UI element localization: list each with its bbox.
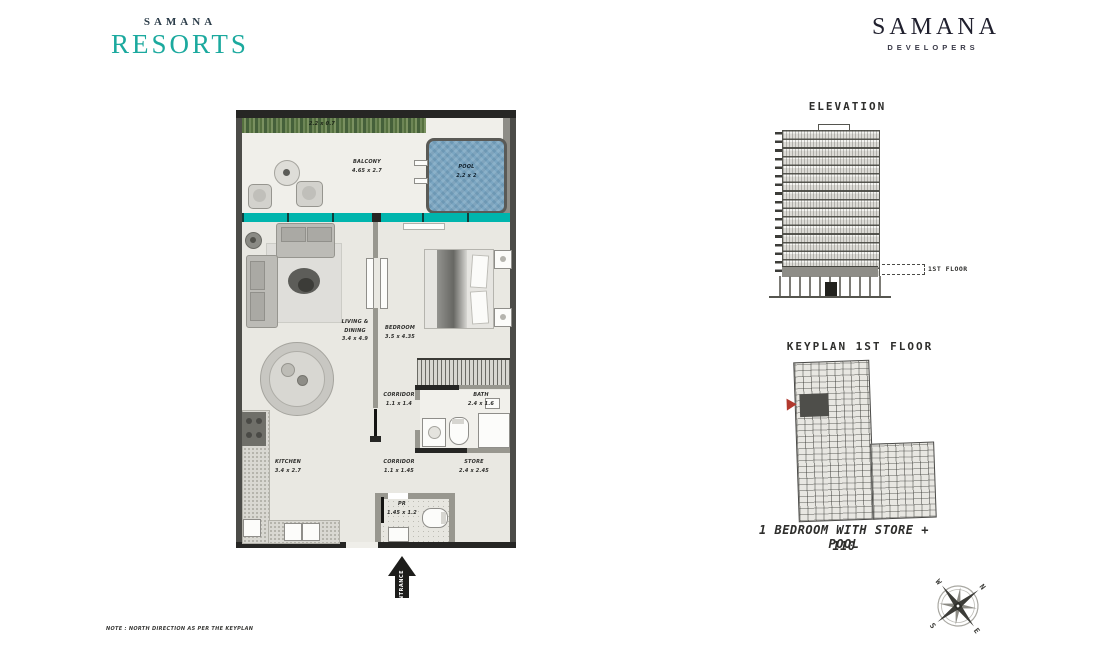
kitchen-appliance [243, 519, 261, 537]
bath-name: BATH [458, 391, 504, 400]
plant [250, 237, 256, 243]
dining-plate [281, 363, 295, 377]
keyplan-highlighted-unit [799, 393, 829, 417]
developers-logo-subtitle: DEVELOPERS [872, 43, 994, 52]
nightstand-lamp [500, 314, 506, 320]
shower-tub [478, 413, 510, 448]
bath-wall-top-2 [459, 385, 510, 389]
pool-ladder-rung [414, 160, 428, 166]
resorts-logo-wordmark-top: SAMANA [110, 16, 250, 28]
balcony-planter: 2.2 x 0.7 [242, 118, 426, 133]
sofa-chaise [246, 255, 278, 328]
sofa-cushion [281, 227, 306, 242]
bedroom-dims: 3.5 x 4.35 [379, 333, 421, 342]
store-name: STORE [450, 458, 498, 467]
corridor1-name: CORRIDOR [380, 391, 418, 400]
bed-pillow [470, 254, 489, 288]
bath-label: BATH 2.4 x 1.6 [458, 391, 504, 408]
store-dims: 2.4 x 2.45 [450, 467, 498, 476]
bedroom-label: BEDROOM 3.5 x 4.35 [379, 324, 421, 341]
bed-pillow [470, 290, 489, 324]
bath-wall-bottom [415, 448, 467, 453]
balcony-chair [296, 181, 323, 207]
keyplan-wing-horizontal [870, 442, 937, 520]
wall-stub [370, 436, 381, 442]
elevation-facade [782, 130, 880, 276]
store-label: STORE 2.4 x 2.45 [450, 458, 498, 475]
corridor1-label: CORRIDOR 1.1 x 1.4 [380, 391, 418, 408]
balcony-chair [248, 184, 272, 209]
bath-dims: 2.4 x 1.6 [458, 400, 504, 409]
page: SAMANA RESORTS SAMANA DEVELOPERS 2.2 x 0… [0, 0, 1100, 650]
living-dims: 3.4 x 4.9 [334, 335, 376, 344]
bath-wall-top [415, 385, 459, 390]
kitchen-dims: 3.4 x 2.7 [264, 467, 312, 476]
pool: POOL 2.2 x 2 [426, 138, 507, 214]
corridor1-dims: 1.1 x 1.4 [380, 400, 418, 409]
pool-dims: 2.2 x 2 [429, 172, 504, 181]
nightstand [494, 308, 512, 327]
pr-sink [388, 527, 409, 542]
sofa-cushion [307, 227, 332, 242]
burner [256, 418, 262, 424]
door-band-wall-stub [372, 213, 381, 222]
compass-e: E [972, 626, 982, 635]
living-label: LIVING & DINING 3.4 x 4.9 [334, 318, 376, 344]
kitchen-label: KITCHEN 3.4 x 2.7 [264, 458, 312, 475]
bath-wall-side [415, 430, 420, 448]
pr-dims: 1.45 x 1.2 [384, 509, 420, 518]
dining-set [260, 342, 334, 416]
pr-label: PR 1.45 x 1.2 [384, 500, 420, 517]
burner [246, 432, 252, 438]
toilet-tank [452, 419, 464, 424]
keyplan-wing-vertical [793, 360, 875, 523]
pr-name: PR [384, 500, 420, 509]
sofa-cushion [250, 261, 265, 290]
plant-pot [245, 232, 262, 249]
compass-w: W [934, 577, 944, 586]
balcony-name: BALCONY [338, 158, 396, 167]
bed-duvet [437, 250, 467, 328]
wall-right [510, 118, 516, 548]
pr-wall-right [449, 493, 455, 542]
elevation-title: ELEVATION [760, 100, 935, 113]
corridor2-dims: 1.1 x 1.45 [380, 467, 418, 476]
coffee-table-tier [298, 278, 314, 292]
kitchen-sink [284, 523, 302, 541]
door-leaf [366, 258, 374, 309]
living-name-1: LIVING & [334, 318, 376, 327]
bedroom-bench [403, 223, 445, 230]
door-leaf [380, 258, 388, 309]
entrance-arrow-shaft: ENTRANCE [395, 576, 409, 598]
toilet [449, 417, 469, 445]
unit-number: 110 [744, 539, 944, 553]
bedroom-name: BEDROOM [379, 324, 421, 333]
keyplan-drawing [785, 355, 941, 525]
elevation-entrance [825, 282, 837, 296]
north-direction-note: NOTE : NORTH DIRECTION AS PER THE KEYPLA… [106, 626, 366, 632]
corridor2-label: CORRIDOR 1.1 x 1.45 [380, 458, 418, 475]
coffee-table [288, 268, 320, 294]
developers-logo-wordmark: SAMANA [872, 14, 994, 41]
balcony-chair-seat [302, 186, 316, 200]
first-floor-leader [882, 264, 925, 275]
wardrobe [417, 358, 510, 386]
kitchen-sink [302, 523, 320, 541]
elevation-ground-line [769, 296, 891, 298]
kitchen-name: KITCHEN [264, 458, 312, 467]
resorts-logo-wordmark: RESORTS [110, 29, 250, 60]
burner [246, 418, 252, 424]
living-name-2: DINING [334, 327, 376, 336]
pr-wall-top [375, 493, 455, 499]
corridor2-name: CORRIDOR [380, 458, 418, 467]
balcony-table-center [283, 169, 290, 176]
burner [256, 432, 262, 438]
pr-door-gap [388, 493, 408, 499]
bath-wall-bottom-2 [467, 448, 510, 453]
entrance-arrow: ENTRANCE [388, 556, 416, 598]
first-floor-tag: 1ST FLOOR [928, 265, 968, 273]
bed [424, 249, 494, 329]
door-leaf-open [374, 409, 377, 436]
resorts-logo: SAMANA RESORTS [110, 16, 250, 60]
dining-plate [297, 375, 308, 386]
pool-name: POOL [429, 163, 504, 172]
keyplan-title: KEYPLAN 1ST FLOOR [770, 340, 950, 353]
bath-sink [428, 426, 441, 439]
compass-s: S [928, 621, 938, 630]
bath-vanity [422, 418, 446, 447]
keyplan-unit-marker [786, 398, 796, 410]
floor-plan: 2.2 x 0.7 POOL 2.2 x 2 BALCONY 4.65 x 2.… [236, 110, 516, 548]
nightstand-lamp [500, 256, 506, 262]
kitchen-cooktop [242, 412, 266, 446]
sofa [276, 223, 335, 258]
balcony-dims: 4.65 x 2.7 [338, 167, 396, 176]
pool-label: POOL 2.2 x 2 [429, 163, 504, 180]
pool-ladder-rung [414, 178, 428, 184]
pr-toilet-tank [441, 512, 446, 524]
wall-bottom-right [378, 542, 516, 548]
pr-toilet [422, 508, 448, 528]
balcony-label: BALCONY 4.65 x 2.7 [338, 158, 396, 175]
compass-rose: N E S W [922, 570, 994, 642]
balcony-chair-seat [253, 189, 266, 202]
partition-wall [373, 222, 378, 258]
wall-top [236, 110, 516, 118]
planter-dims: 2.2 x 0.7 [292, 120, 352, 129]
sofa-cushion [250, 292, 265, 321]
compass-n: N [977, 582, 987, 591]
developers-logo: SAMANA DEVELOPERS [872, 14, 994, 52]
nightstand [494, 250, 512, 269]
entrance-label: ENTRANCE [399, 570, 405, 604]
